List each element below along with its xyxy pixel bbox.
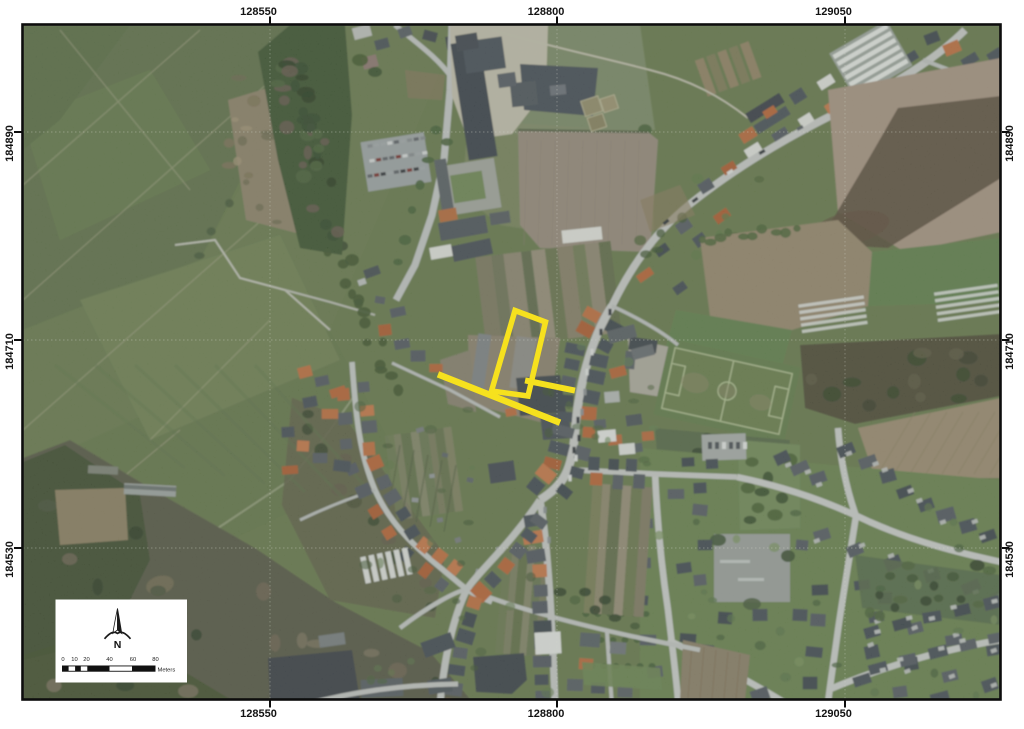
svg-text:N: N [114, 639, 122, 651]
svg-text:Meters: Meters [158, 668, 176, 674]
svg-text:80: 80 [152, 657, 158, 663]
svg-text:10: 10 [71, 657, 77, 663]
svg-text:0: 0 [61, 657, 64, 663]
svg-text:184890: 184890 [4, 125, 16, 162]
svg-text:128550: 128550 [240, 708, 277, 720]
svg-text:128800: 128800 [528, 6, 565, 18]
svg-text:128550: 128550 [240, 6, 277, 18]
svg-text:184530: 184530 [1004, 541, 1016, 578]
svg-text:129050: 129050 [815, 6, 852, 18]
svg-text:184890: 184890 [1004, 125, 1016, 162]
svg-text:184710: 184710 [4, 333, 16, 370]
svg-text:40: 40 [106, 657, 112, 663]
svg-text:184710: 184710 [1004, 333, 1016, 370]
svg-text:128800: 128800 [528, 708, 565, 720]
svg-text:60: 60 [130, 657, 136, 663]
svg-text:184530: 184530 [4, 541, 16, 578]
svg-text:129050: 129050 [815, 708, 852, 720]
svg-text:20: 20 [83, 657, 89, 663]
